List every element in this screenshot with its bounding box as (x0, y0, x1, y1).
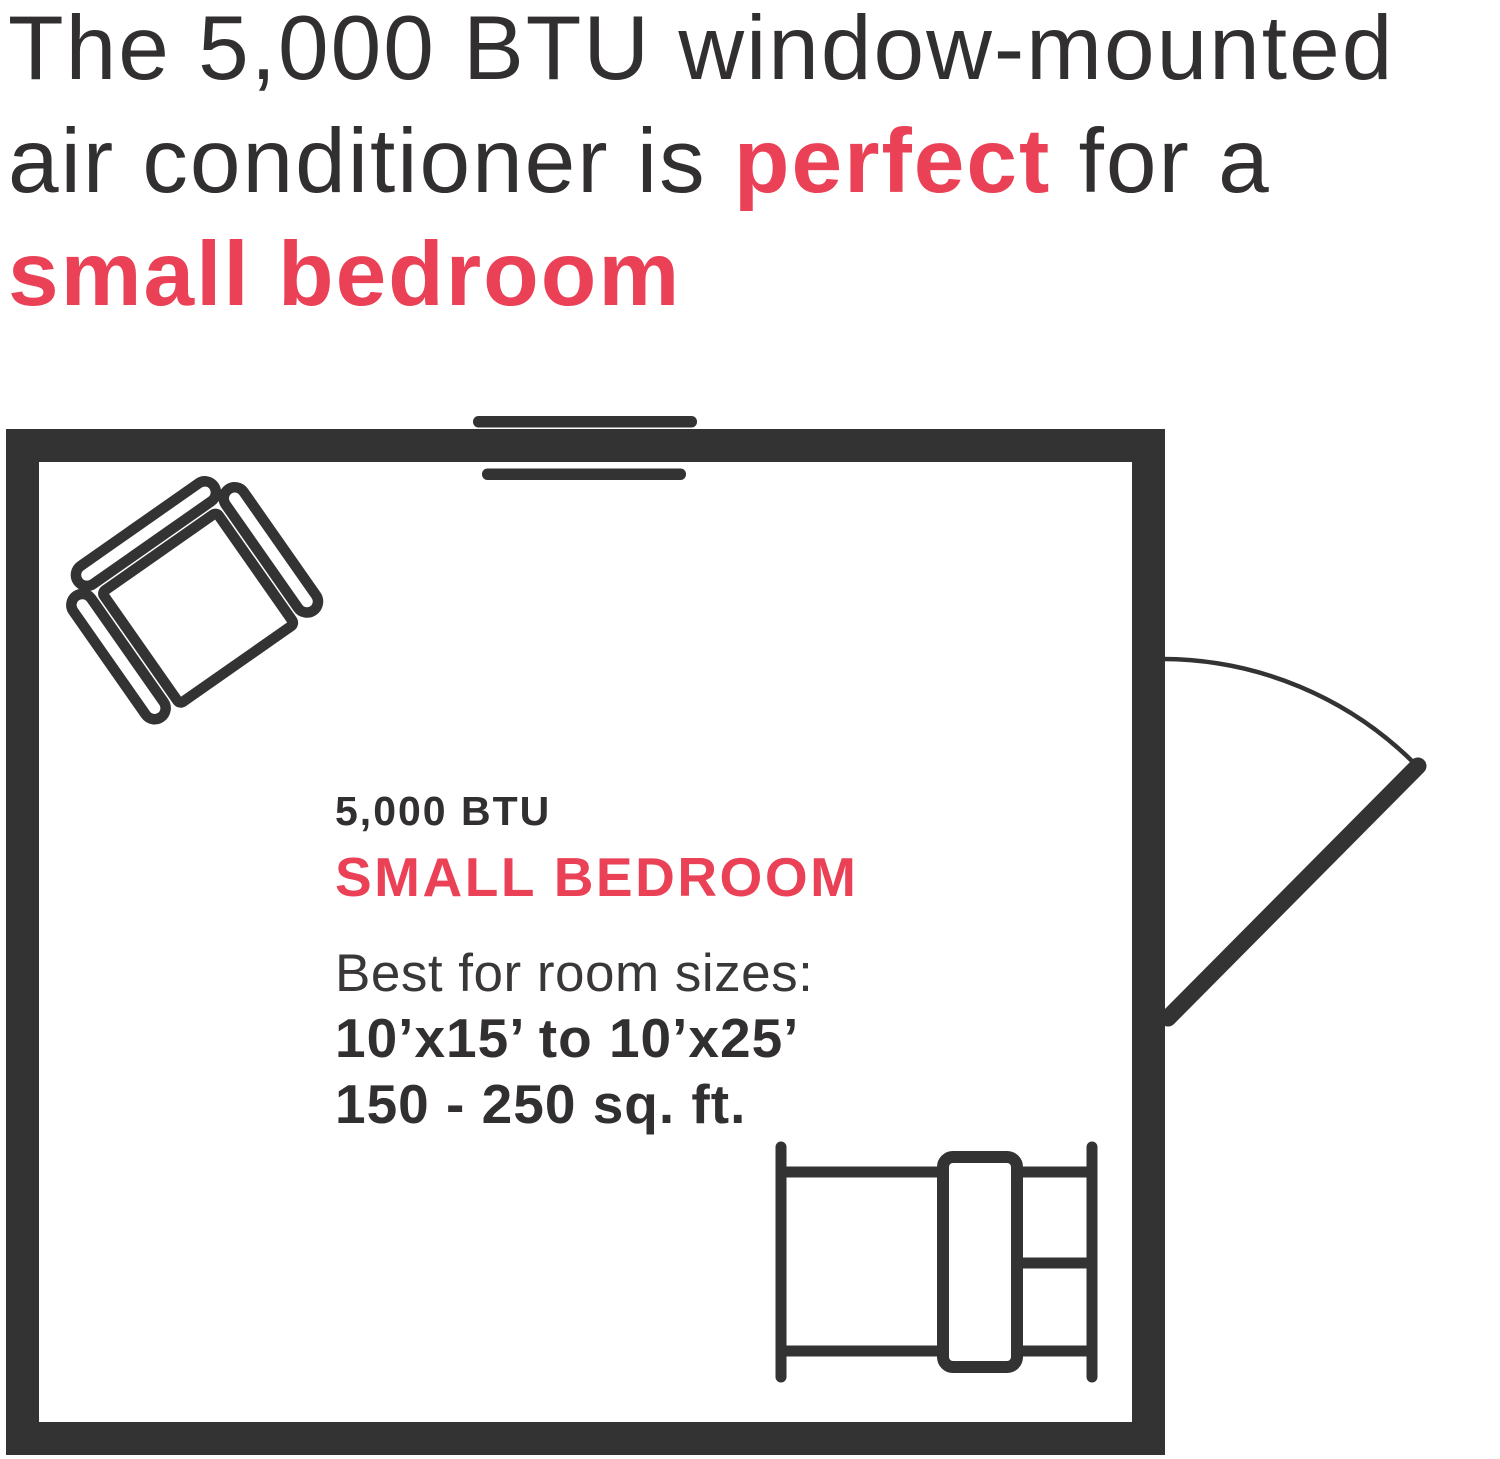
window-ac-outer-bar (473, 416, 697, 428)
room-label: 5,000 BTU SMALL BEDROOM Best for room si… (335, 788, 858, 1135)
room-label-area: 150 - 250 sq. ft. (335, 1073, 858, 1135)
bed-icon (781, 1147, 1092, 1377)
room-label-subtitle: Best for room sizes: (335, 946, 858, 1002)
door-leaf (1168, 766, 1418, 1018)
window-ac-inner-bar (482, 469, 686, 481)
room-label-btu: 5,000 BTU (335, 788, 858, 834)
door-swing-arc (1163, 659, 1416, 765)
bed-pillow (943, 1157, 1017, 1367)
floor-plan (0, 0, 1500, 1459)
door-icon (1163, 659, 1418, 1018)
armchair-icon (54, 465, 322, 724)
room-label-dimensions: 10’x15’ to 10’x25’ (335, 1007, 858, 1069)
room-label-room-type: SMALL BEDROOM (335, 848, 858, 906)
